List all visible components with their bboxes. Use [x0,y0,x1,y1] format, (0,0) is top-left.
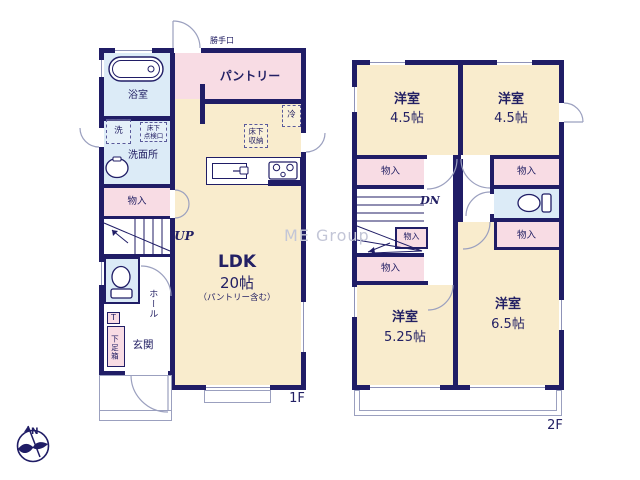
washroom-door-arc [80,128,99,147]
back-door-opening [174,48,201,53]
stairs-up-label: UP [171,229,197,244]
door-arc-2f-right [564,103,583,122]
closet-nw-label: 物入 [362,166,419,178]
balcony-inner [359,390,557,411]
door-opening-2f-right [559,103,564,122]
room-nw-4-5 [357,65,458,155]
room-sw-label: 洋室 [365,310,445,326]
closet-se-label: 物入 [496,230,557,242]
back-door-label: 勝手口 [200,36,244,46]
window-ldk-right [301,302,306,352]
ldk-step [204,390,271,403]
laundry-label: 洗 [110,126,127,137]
closet-ne-label: 物入 [496,166,557,178]
ldk-side-door-opening [301,133,306,152]
room-nw-size-label: 4.5帖 [367,111,447,127]
pantry-wall-h [200,99,301,104]
door-opening-toilet-2f [490,194,494,214]
stairs-1f-area [104,219,170,254]
back-door-arc [173,21,200,48]
room-bathroom [104,53,170,116]
hall-ldk-opening [170,190,175,218]
washroom-door-opening [99,128,104,147]
window-2f-left-upper [352,87,357,112]
hall-2f [424,159,453,281]
floor-plan-page: N 勝手口 パントリー 浴室 洗 床下 点検口 洗面所 物入 冷 床下 収納 L… [0,0,640,480]
refrigerator-label: 冷 [283,110,300,121]
closet-sw-label: 物入 [362,263,419,275]
ldk-side-door-arc [306,133,325,152]
window-bath-left [99,60,104,77]
stairs-down-label: DN [417,194,443,208]
kitchen-sink [212,163,247,179]
floor1-label: 1F [282,391,312,407]
window-2f-left-lower [352,287,357,317]
window-bathroom-top [115,48,152,53]
entrance-porch [99,375,172,411]
window-toilet-left [99,262,104,285]
ldk-name-label: LDK [197,252,277,273]
window-se-bottom [470,385,545,390]
ldk-note-label: （パントリー含む） [187,293,287,304]
entrance-step [99,411,172,421]
bathroom-label: 浴室 [114,90,162,103]
room-toilet-2f [494,189,559,218]
underfloor-inspection-label: 床下 点検口 [140,124,167,140]
door-opening-nw-room [427,155,453,159]
floor2-label: 2F [540,418,570,434]
entrance-label: 玄関 [119,339,167,352]
shoe-mark-label: T [107,313,120,323]
room-ne-size-label: 4.5帖 [471,111,551,127]
room-ne-4-5 [463,65,559,155]
ldk-size-label: 20帖 [197,274,277,293]
room-sw-size-label: 5.25帖 [365,330,445,346]
window-nw-top [370,60,405,65]
door-opening-se-room [463,218,490,222]
compass-icon: N [18,426,49,462]
ldk-sliding-window [206,385,270,390]
storage-1f-label: 物入 [109,196,165,208]
window-2f-right [559,300,564,330]
compass-north-label: N [31,427,39,437]
door-opening-ne-room [461,155,490,159]
pantry-label: パントリー [195,69,305,84]
underfloor-storage-label: 床下 収納 [244,127,268,146]
door-opening-sw-room [428,281,453,285]
washroom-label: 洗面所 [119,150,167,163]
pantry-wall-v [200,84,205,124]
room-toilet-1f [104,257,140,304]
closet-center-label: 物入 [396,232,427,242]
hall-2f-nook [463,159,490,222]
counter-wall [268,180,306,186]
room-se-size-label: 6.5帖 [468,317,548,333]
room-ne-label: 洋室 [471,92,551,108]
shoe-cabinet-label: 下足箱 [110,329,119,367]
room-nw-label: 洋室 [367,92,447,108]
window-sw-bottom [370,385,440,390]
watermark: ME Group [284,226,370,245]
hall-label: ホール [146,284,157,324]
window-ne-top [497,60,532,65]
entrance-door-opening [125,371,168,375]
room-se-label: 洋室 [468,297,548,313]
